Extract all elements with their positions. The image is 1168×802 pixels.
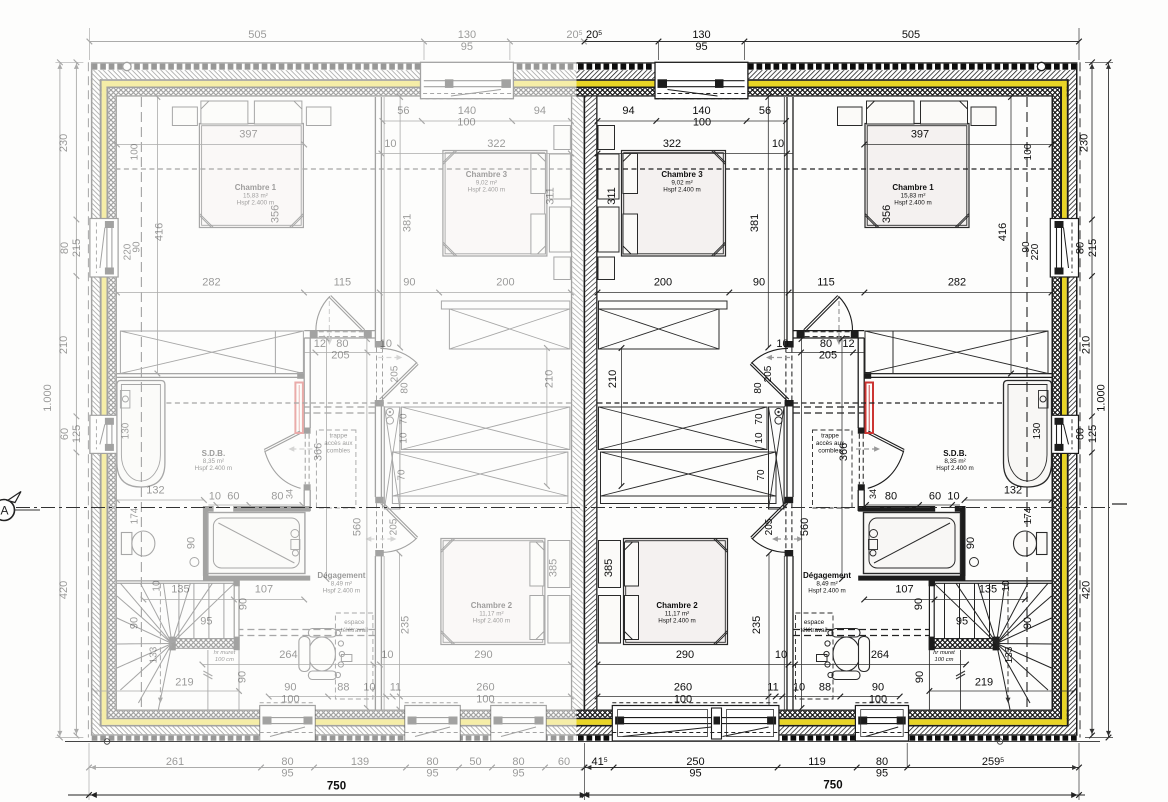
svg-text:80: 80 <box>885 491 897 503</box>
svg-text:95: 95 <box>461 41 473 53</box>
svg-text:80: 80 <box>59 242 71 254</box>
svg-text:11,17 m²: 11,17 m² <box>665 611 689 618</box>
svg-text:282: 282 <box>202 277 220 289</box>
svg-text:15,83 m²: 15,83 m² <box>243 193 268 200</box>
svg-text:80: 80 <box>753 382 764 394</box>
svg-text:80: 80 <box>820 338 832 350</box>
svg-text:15,83 m²: 15,83 m² <box>901 193 926 200</box>
svg-text:210: 210 <box>58 336 70 354</box>
svg-text:10: 10 <box>754 432 765 444</box>
svg-text:S.D.B.: S.D.B. <box>943 449 967 458</box>
svg-text:60: 60 <box>227 491 239 503</box>
svg-text:130: 130 <box>692 29 710 41</box>
svg-text:accès aux: accès aux <box>324 440 353 447</box>
svg-text:Hspf 2.400 m: Hspf 2.400 m <box>894 200 931 207</box>
svg-text:Hspf 2.400 m: Hspf 2.400 m <box>468 187 505 194</box>
svg-text:90: 90 <box>403 277 415 289</box>
svg-text:34: 34 <box>284 489 294 499</box>
svg-text:356: 356 <box>269 205 281 223</box>
svg-text:70: 70 <box>396 469 407 481</box>
svg-text:Hspf 2.400 m: Hspf 2.400 m <box>473 618 510 625</box>
svg-text:100 cm: 100 cm <box>215 657 234 663</box>
svg-text:220: 220 <box>1030 243 1041 260</box>
svg-text:trappe: trappe <box>821 433 839 440</box>
svg-text:95: 95 <box>956 616 968 628</box>
svg-text:381: 381 <box>401 214 413 232</box>
svg-text:100: 100 <box>1023 143 1034 160</box>
svg-text:215: 215 <box>71 239 83 257</box>
svg-text:10: 10 <box>384 138 396 150</box>
svg-text:90: 90 <box>237 598 249 610</box>
svg-text:88: 88 <box>819 682 831 694</box>
svg-text:1.000: 1.000 <box>42 384 54 412</box>
svg-text:505: 505 <box>902 29 920 41</box>
svg-text:322: 322 <box>663 138 681 150</box>
svg-text:10: 10 <box>380 338 392 350</box>
svg-text:Hspf 2.400 m: Hspf 2.400 m <box>663 187 700 194</box>
svg-text:80: 80 <box>426 756 438 768</box>
svg-text:205: 205 <box>331 350 349 362</box>
svg-text:8,35 m²: 8,35 m² <box>203 458 224 465</box>
svg-text:8,49 m²: 8,49 m² <box>331 581 352 588</box>
svg-text:télétravail: télétravail <box>801 627 828 634</box>
svg-text:205: 205 <box>764 518 775 535</box>
svg-text:Dégagement: Dégagement <box>317 571 365 580</box>
svg-text:Hspf 2.400 m: Hspf 2.400 m <box>195 465 232 472</box>
svg-text:10: 10 <box>1001 580 1012 592</box>
svg-text:220: 220 <box>122 243 133 260</box>
svg-text:205: 205 <box>389 365 400 382</box>
svg-text:Hspf 2.400 m: Hspf 2.400 m <box>936 465 973 472</box>
svg-text:210: 210 <box>543 370 555 388</box>
svg-text:94: 94 <box>622 105 634 117</box>
svg-text:10: 10 <box>772 138 784 150</box>
svg-text:90: 90 <box>872 682 884 694</box>
svg-text:80: 80 <box>876 756 888 768</box>
svg-text:174: 174 <box>1023 507 1034 524</box>
svg-text:385: 385 <box>603 559 615 577</box>
svg-text:290: 290 <box>474 649 492 661</box>
svg-text:11: 11 <box>767 682 778 694</box>
svg-text:174: 174 <box>129 507 140 524</box>
svg-text:10: 10 <box>775 649 787 661</box>
svg-text:381: 381 <box>749 214 761 232</box>
svg-text:750: 750 <box>327 781 346 793</box>
svg-text:combles: combles <box>327 448 350 455</box>
svg-text:385: 385 <box>547 559 559 577</box>
svg-text:A: A <box>0 504 8 518</box>
svg-text:397: 397 <box>911 129 929 141</box>
svg-text:366: 366 <box>838 443 850 461</box>
svg-text:420: 420 <box>1081 581 1093 599</box>
svg-text:10: 10 <box>398 432 409 444</box>
svg-text:Chambre 2: Chambre 2 <box>471 601 513 610</box>
svg-text:9,02 m²: 9,02 m² <box>476 180 497 187</box>
svg-text:9,02 m²: 9,02 m² <box>671 180 692 187</box>
svg-text:210: 210 <box>607 370 619 388</box>
svg-text:215: 215 <box>1087 239 1099 257</box>
svg-text:100: 100 <box>129 143 140 160</box>
svg-text:95: 95 <box>695 41 707 53</box>
svg-text:Hspf 2.400 m: Hspf 2.400 m <box>658 618 695 625</box>
svg-text:100: 100 <box>693 117 711 129</box>
svg-text:90: 90 <box>965 537 977 549</box>
svg-text:140: 140 <box>692 105 710 117</box>
svg-text:70: 70 <box>756 469 767 481</box>
svg-text:505: 505 <box>248 29 266 41</box>
svg-text:290: 290 <box>676 649 694 661</box>
svg-text:560: 560 <box>799 518 811 536</box>
svg-text:60: 60 <box>59 428 71 440</box>
svg-text:80: 80 <box>271 491 283 503</box>
svg-text:34: 34 <box>868 489 878 499</box>
svg-text:60: 60 <box>558 756 570 768</box>
svg-text:90: 90 <box>913 598 925 610</box>
svg-text:416: 416 <box>153 223 165 241</box>
svg-text:219: 219 <box>975 677 993 689</box>
svg-text:235: 235 <box>399 616 411 634</box>
svg-text:260: 260 <box>476 682 494 694</box>
svg-text:230: 230 <box>1079 134 1091 152</box>
svg-text:366: 366 <box>312 443 324 461</box>
svg-text:130: 130 <box>458 29 476 41</box>
svg-text:Hspf 2.400 m: Hspf 2.400 m <box>323 588 360 595</box>
svg-text:140: 140 <box>458 105 476 117</box>
svg-text:282: 282 <box>948 277 966 289</box>
svg-text:Dégagement: Dégagement <box>803 571 851 580</box>
svg-text:95: 95 <box>512 768 524 780</box>
svg-text:90: 90 <box>284 682 296 694</box>
svg-text:80: 80 <box>336 338 348 350</box>
svg-text:70: 70 <box>754 413 765 425</box>
svg-text:11: 11 <box>390 682 401 694</box>
svg-text:100: 100 <box>457 117 475 129</box>
svg-text:95: 95 <box>281 768 293 780</box>
svg-text:Chambre 1: Chambre 1 <box>235 183 277 192</box>
svg-text:70: 70 <box>398 413 409 425</box>
svg-text:trappe: trappe <box>329 433 347 440</box>
svg-text:119: 119 <box>808 756 826 768</box>
svg-text:90: 90 <box>1022 617 1034 629</box>
svg-text:espace: espace <box>344 619 365 626</box>
svg-text:10: 10 <box>793 682 805 694</box>
svg-text:135: 135 <box>979 584 997 596</box>
svg-text:94: 94 <box>534 105 546 117</box>
svg-text:200: 200 <box>654 277 672 289</box>
svg-text:Chambre 3: Chambre 3 <box>466 170 508 179</box>
svg-text:50: 50 <box>469 756 481 768</box>
svg-text:10: 10 <box>947 491 959 503</box>
svg-text:200: 200 <box>496 277 514 289</box>
svg-text:397: 397 <box>239 129 257 141</box>
svg-text:125: 125 <box>71 425 83 443</box>
svg-text:1.000: 1.000 <box>1096 384 1108 412</box>
svg-text:80: 80 <box>1075 242 1087 254</box>
svg-text:264: 264 <box>871 649 889 661</box>
svg-text:205: 205 <box>763 365 774 382</box>
svg-text:56: 56 <box>397 105 409 117</box>
svg-text:416: 416 <box>997 223 1009 241</box>
svg-text:356: 356 <box>881 205 893 223</box>
svg-text:235: 235 <box>751 616 763 634</box>
svg-text:107: 107 <box>895 584 913 596</box>
svg-text:espace: espace <box>804 619 825 626</box>
svg-text:261: 261 <box>166 756 184 768</box>
svg-text:133: 133 <box>148 646 159 663</box>
svg-text:139: 139 <box>351 756 369 768</box>
svg-text:80: 80 <box>281 756 293 768</box>
svg-text:95: 95 <box>689 768 701 780</box>
svg-text:230: 230 <box>58 134 70 152</box>
svg-text:8,35 m²: 8,35 m² <box>944 458 965 465</box>
svg-text:8,49 m²: 8,49 m² <box>816 581 837 588</box>
svg-text:95: 95 <box>200 616 212 628</box>
svg-text:Hspf 2.400 m: Hspf 2.400 m <box>808 588 845 595</box>
svg-text:90: 90 <box>914 671 926 683</box>
svg-text:10: 10 <box>363 682 375 694</box>
svg-text:135: 135 <box>171 584 189 596</box>
svg-text:311: 311 <box>544 187 556 205</box>
svg-text:100: 100 <box>869 694 887 706</box>
svg-text:125: 125 <box>1087 425 1099 443</box>
svg-text:107: 107 <box>255 584 273 596</box>
svg-text:60: 60 <box>929 491 941 503</box>
svg-text:80: 80 <box>399 382 410 394</box>
svg-text:100: 100 <box>281 694 299 706</box>
svg-text:250: 250 <box>686 756 704 768</box>
svg-text:télétravail: télétravail <box>341 627 368 634</box>
svg-text:10: 10 <box>776 338 788 350</box>
svg-text:115: 115 <box>334 277 352 289</box>
svg-text:90: 90 <box>185 537 197 549</box>
svg-text:750: 750 <box>823 780 842 792</box>
svg-text:90: 90 <box>236 671 248 683</box>
svg-text:90: 90 <box>128 617 140 629</box>
svg-text:219: 219 <box>175 677 193 689</box>
svg-text:311: 311 <box>606 187 618 205</box>
svg-text:10: 10 <box>381 649 393 661</box>
svg-text:132: 132 <box>146 485 164 497</box>
svg-text:12: 12 <box>842 338 854 350</box>
svg-text:90: 90 <box>753 277 765 289</box>
svg-text:Chambre 3: Chambre 3 <box>661 170 703 179</box>
svg-text:hr muret: hr muret <box>933 650 955 656</box>
svg-text:10: 10 <box>209 491 221 503</box>
svg-text:11,17 m²: 11,17 m² <box>479 611 503 618</box>
svg-text:130: 130 <box>1032 422 1043 439</box>
svg-text:Chambre 2: Chambre 2 <box>656 601 698 610</box>
svg-text:115: 115 <box>817 277 835 289</box>
svg-text:95: 95 <box>426 768 438 780</box>
svg-text:260: 260 <box>674 682 692 694</box>
svg-text:100: 100 <box>674 694 692 706</box>
svg-text:88: 88 <box>337 682 349 694</box>
svg-text:60: 60 <box>1075 428 1087 440</box>
svg-text:100 cm: 100 cm <box>934 657 953 663</box>
svg-text:hr muret: hr muret <box>214 650 236 656</box>
svg-text:Chambre 1: Chambre 1 <box>892 183 934 192</box>
svg-text:80: 80 <box>512 756 524 768</box>
svg-text:56: 56 <box>759 105 771 117</box>
svg-text:132: 132 <box>1004 485 1022 497</box>
svg-text:95: 95 <box>876 768 888 780</box>
svg-text:10: 10 <box>151 580 162 592</box>
svg-text:S.D.B.: S.D.B. <box>202 449 226 458</box>
svg-text:100: 100 <box>476 694 494 706</box>
svg-text:133: 133 <box>1004 646 1015 663</box>
svg-text:205: 205 <box>388 518 399 535</box>
svg-text:420: 420 <box>58 581 70 599</box>
svg-text:264: 264 <box>279 649 297 661</box>
svg-text:560: 560 <box>351 518 363 536</box>
svg-text:210: 210 <box>1081 336 1093 354</box>
svg-text:12: 12 <box>314 338 326 350</box>
svg-text:205: 205 <box>819 350 837 362</box>
svg-text:130: 130 <box>120 422 131 439</box>
svg-text:322: 322 <box>487 138 505 150</box>
